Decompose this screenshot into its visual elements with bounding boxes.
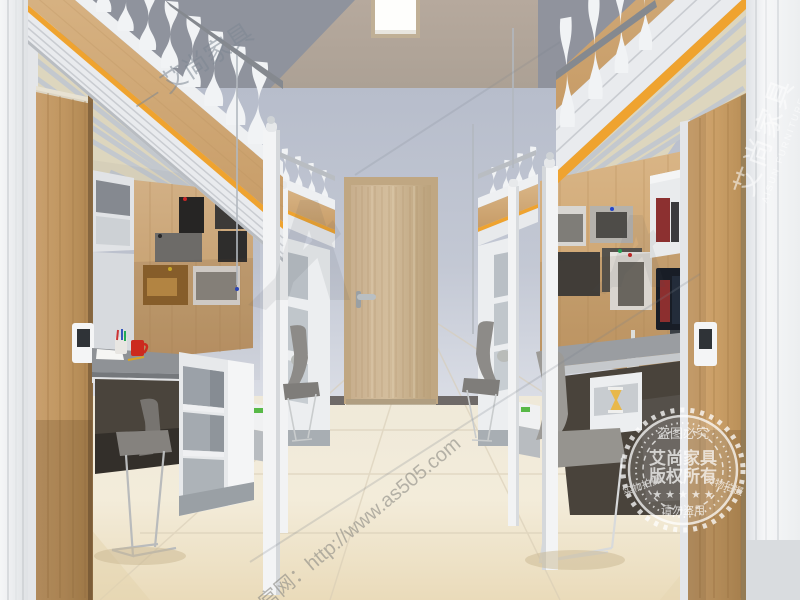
svg-text:★ ★ ★ ★ ★: ★ ★ ★ ★ ★	[652, 489, 714, 501]
svg-text:请勿盗用: 请勿盗用	[661, 504, 705, 517]
svg-text:艾尚家具: 艾尚家具	[649, 448, 717, 468]
svg-text:盗图必究: 盗图必究	[657, 426, 709, 441]
